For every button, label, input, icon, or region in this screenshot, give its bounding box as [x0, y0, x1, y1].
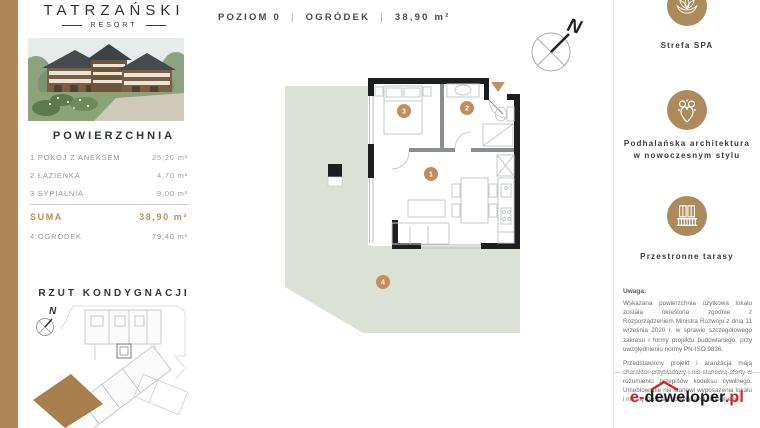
separator: | — [380, 12, 385, 23]
plan-main: POZIOM 0 | OGRÓDEK | 38,90 m² N — [210, 0, 613, 428]
room-row-lazienka: 2 ŁAZIENKA 4,70 m² — [30, 171, 188, 180]
plan-feature: OGRÓDEK — [306, 12, 371, 23]
svg-text:4: 4 — [381, 280, 385, 287]
total-label: SUMA — [30, 212, 63, 222]
compass-icon: N — [525, 14, 591, 78]
building-illustration — [28, 38, 184, 121]
room-label: 1 POKÓJ Z ANEKSEM — [30, 153, 120, 162]
area-section-title: POWIERZCHNIA — [18, 130, 210, 142]
svg-text:3: 3 — [402, 109, 406, 116]
balcony-terrace-icon — [667, 196, 707, 236]
room-badge-living: 1 — [424, 167, 438, 181]
dash-right — [146, 25, 166, 26]
garden-label: 4 OGRÓDEK — [30, 232, 82, 241]
room-label: 3 SYPIALNIA — [30, 189, 84, 198]
roof-icon — [650, 381, 680, 391]
total-area-row: SUMA 38,90 m² — [30, 212, 188, 222]
room-label: 2 ŁAZIENKA — [30, 171, 81, 180]
brand-subtitle-text: RESORT — [90, 22, 137, 29]
brand-logo: TATRZAŃSKI RESORT — [18, 2, 210, 29]
lotus-spa-icon — [667, 0, 707, 26]
brand-subtitle: RESORT — [18, 22, 210, 29]
svg-text:2: 2 — [465, 106, 469, 113]
accent-bar — [0, 0, 18, 428]
page: TATRZAŃSKI RESORT — [0, 0, 760, 428]
note-title: Uwaga: — [623, 288, 752, 295]
note-paragraph: Wskazana powierzchnia użytkowa lokalu zo… — [623, 299, 752, 354]
garden-area-row: 4 OGRÓDEK 79,40 m² — [30, 232, 188, 241]
plan-level: POZIOM 0 — [218, 12, 281, 23]
svg-text:N: N — [49, 306, 57, 317]
feature-label-architecture: Podhalańska architektura w nowoczesnym s… — [614, 138, 760, 162]
separator: | — [291, 12, 296, 23]
highlander-ornament-icon — [667, 90, 707, 130]
logo-middle: deweloper — [645, 389, 725, 406]
feature-label-spa: Strefa SPA — [614, 40, 760, 52]
e-deweloper-logo[interactable]: e-deweloper.pl — [614, 389, 760, 407]
divider — [30, 204, 188, 205]
divider — [614, 372, 760, 373]
floor-overview-plan: N — [25, 302, 205, 428]
brand-title: TATRZAŃSKI — [18, 2, 210, 19]
room-row-sypialnia: 3 SYPIALNIA 9,00 m² — [30, 189, 188, 198]
svg-text:1: 1 — [429, 172, 433, 179]
room-badge-garden: 4 — [376, 275, 390, 289]
garden-value: 79,40 m² — [152, 232, 188, 241]
feature-label-terraces: Przestronne tarasy — [614, 251, 760, 263]
left-sidebar: TATRZAŃSKI RESORT — [18, 0, 210, 428]
room-value: 4,70 m² — [157, 171, 188, 180]
svg-text:N: N — [565, 15, 585, 39]
room-value: 9,00 m² — [157, 189, 188, 198]
floor-overview-drawing: N — [25, 302, 205, 428]
room-badge-bedroom: 3 — [397, 104, 411, 118]
floor-overview-title: RZUT KONDYGNACJI — [18, 288, 210, 299]
plan-area-value: 38,90 m² — [395, 12, 451, 23]
room-list: 1 POKÓJ Z ANEKSEM 25,20 m² 2 ŁAZIENKA 4,… — [30, 153, 188, 207]
dash-left — [62, 25, 82, 26]
logo-suffix: .pl — [725, 389, 744, 406]
total-value: 38,90 m² — [139, 212, 188, 222]
apartment-floorplan: 1 2 3 4 — [285, 60, 525, 350]
logo-prefix: e- — [630, 389, 645, 406]
room-row-pokoj: 1 POKÓJ Z ANEKSEM 25,20 m² — [30, 153, 188, 162]
room-value: 25,20 m² — [152, 153, 188, 162]
right-sidebar: Strefa SPA Podhalańska architektura w no… — [613, 0, 760, 428]
garden-planter — [328, 164, 342, 177]
building-render-image — [28, 38, 184, 121]
room-badge-bathroom: 2 — [460, 101, 474, 115]
plan-header: POZIOM 0 | OGRÓDEK | 38,90 m² — [218, 12, 450, 23]
mini-compass-icon: N — [37, 306, 58, 336]
